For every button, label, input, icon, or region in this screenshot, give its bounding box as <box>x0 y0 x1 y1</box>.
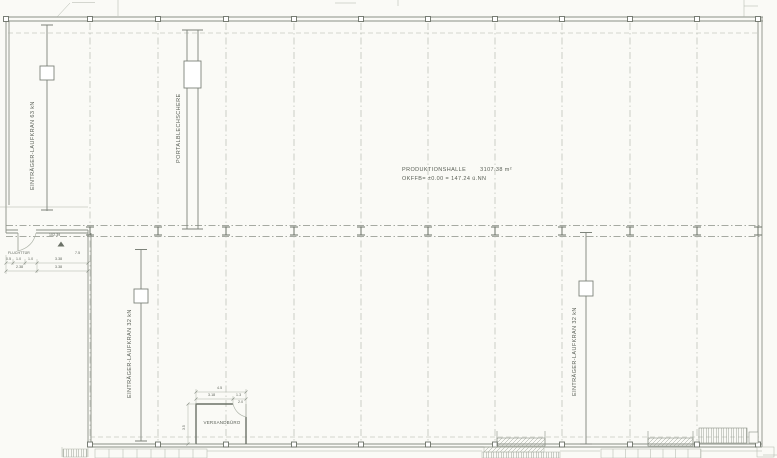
cutoff-hatch-a <box>63 449 87 457</box>
hall-name: PRODUKTIONSHALLE <box>402 167 466 173</box>
steel-column <box>693 227 701 235</box>
office-dim-right: 1.3 <box>236 393 241 397</box>
column-marker <box>156 17 161 22</box>
escape-door-label: FLUCHTTÜR <box>8 251 30 255</box>
cutoff-strip <box>62 447 777 458</box>
hall-area: 3107.38 m² <box>480 167 512 173</box>
column-marker <box>4 17 9 22</box>
floor-plan-sheet: PRODUKTIONSHALLE3107.38 m² OKFFB= ±0.00 … <box>0 0 777 458</box>
office-door-arc <box>233 404 246 417</box>
column-marker <box>560 442 565 447</box>
cutoff-rooms-right <box>601 449 701 458</box>
crane-top-left-label: EINTRÄGER-LAUFKRAN 63 kN <box>30 101 36 190</box>
hall-walls <box>0 17 763 447</box>
entry-dim-4: 3.38 <box>55 257 62 261</box>
elevation-marker-value: 102.39 <box>49 233 60 237</box>
crane-top-left-trolley <box>40 66 54 80</box>
entry-dim-7: 3.38 <box>55 265 62 269</box>
cutoff-room-dividers <box>109 449 701 458</box>
crane-bottom-right-trolley <box>579 281 593 296</box>
portal-rails <box>182 30 203 229</box>
crane-bottom-left-trolley <box>134 289 148 303</box>
steel-column <box>290 227 298 235</box>
plan-linework <box>0 0 777 458</box>
office-dim-side: 3.5 <box>182 425 186 430</box>
column-marker <box>426 442 431 447</box>
top-wall <box>6 17 763 21</box>
column-marker <box>292 17 297 22</box>
entry-dim-5: 7.5 <box>75 251 80 255</box>
column-grid <box>90 23 697 443</box>
steel-column <box>754 227 762 235</box>
entry-dim-1: 0.5 <box>6 257 11 261</box>
entry-dim-2: 1.0 <box>16 257 21 261</box>
office-dim-left: 3.18 <box>208 393 215 397</box>
column-marker <box>224 442 229 447</box>
gate-hatch-left <box>497 438 545 446</box>
column-marker <box>560 17 565 22</box>
crane-top-left-rail <box>41 25 53 212</box>
edge-detail-marks <box>57 0 758 17</box>
column-marker <box>224 17 229 22</box>
column-marker <box>88 442 93 447</box>
column-marker <box>756 17 761 22</box>
hall-floor-level: OKFFB= ±0.00 = 147.24 ü.NN <box>402 175 512 184</box>
crane-bottom-left-rail <box>135 249 147 441</box>
crane-runway-lines <box>6 226 762 237</box>
steel-column <box>222 227 230 235</box>
right-wall <box>758 17 762 447</box>
shipping-office-label: VERSANDBÜRO <box>198 420 246 425</box>
steel-column <box>491 227 499 235</box>
cutoff-hatch-b <box>484 447 544 452</box>
steel-column <box>86 227 94 235</box>
column-marker <box>359 442 364 447</box>
portal-carriage <box>184 61 201 88</box>
column-marker <box>628 17 633 22</box>
column-marker <box>695 17 700 22</box>
gate-hatch-right <box>648 438 693 446</box>
steel-column <box>424 227 432 235</box>
loading-ramp-hatch <box>699 428 747 443</box>
column-marker <box>88 17 93 22</box>
steel-column <box>558 227 566 235</box>
office-dim-inner: 2.0 <box>238 400 243 404</box>
step-wall <box>6 230 88 233</box>
column-marker <box>628 442 633 447</box>
entry-dim-6: 2.38 <box>16 265 23 269</box>
column-marker <box>493 17 498 22</box>
column-marker <box>156 442 161 447</box>
column-marker <box>359 17 364 22</box>
office-dim-total: 4.5 <box>217 386 222 390</box>
portal-label: PORTALBLECHSCHERE <box>176 93 182 163</box>
crane-bottom-right-label: EINTRÄGER-LAUFKRAN 32 kN <box>572 307 578 396</box>
elevation-triangle-icon <box>58 242 65 247</box>
column-marker <box>292 442 297 447</box>
column-marker <box>426 17 431 22</box>
cutoff-hatch-c <box>482 452 560 458</box>
roof-dashed-lines <box>8 33 760 437</box>
steel-column <box>357 227 365 235</box>
corner-box <box>749 432 758 443</box>
door-swing-arc <box>18 233 36 251</box>
crane-bottom-left-label: EINTRÄGER-LAUFKRAN 32 kN <box>127 309 133 398</box>
crane-bottom-right-rail <box>580 232 592 444</box>
cutoff-lines <box>62 447 777 457</box>
cutoff-small-box <box>757 447 774 457</box>
left-wall-upper <box>6 17 9 233</box>
steel-column <box>626 227 634 235</box>
entry-dim-3: 1.0 <box>28 257 33 261</box>
crane-symbols <box>40 25 593 445</box>
steel-column <box>154 227 162 235</box>
hall-title-block: PRODUKTIONSHALLE3107.38 m² OKFFB= ±0.00 … <box>402 166 512 185</box>
